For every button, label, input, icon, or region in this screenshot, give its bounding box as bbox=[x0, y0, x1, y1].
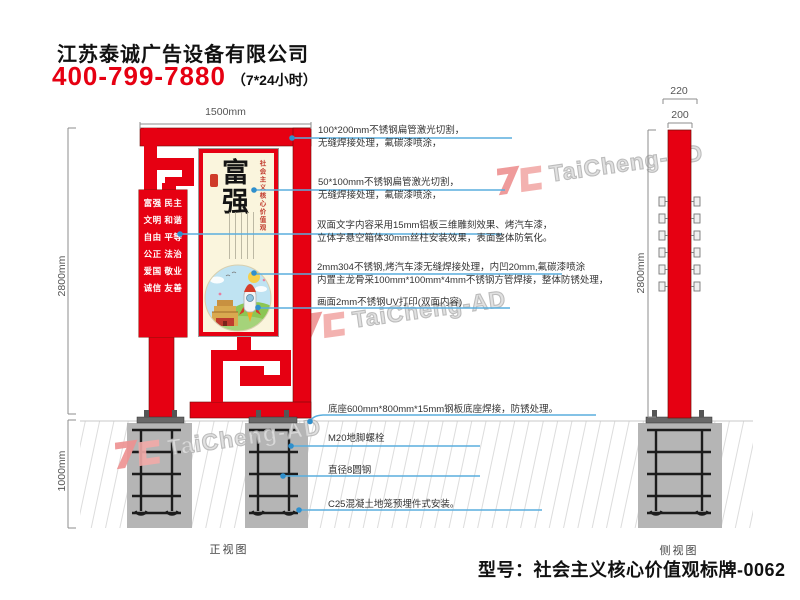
annotation-base-plate: 底座600mm*800mm*15mm钢板底座焊接，防锈处理。 bbox=[328, 403, 558, 416]
annotation-uv-print: 画面2mm不锈钢UV打印(双面内容) bbox=[317, 296, 462, 309]
phone-number: 400-799-7880 bbox=[52, 61, 226, 92]
dim-underground-label: 1000mm bbox=[56, 439, 68, 503]
phone-row: 400-799-7880 （7*24小时） bbox=[52, 61, 317, 92]
annotation-rebar: 直径8圆钢 bbox=[328, 464, 371, 477]
annotation-concrete: C25混凝土地笼预埋件式安装。 bbox=[328, 498, 459, 511]
service-hours: （7*24小时） bbox=[232, 70, 317, 90]
annotation-side-tube: 50*100mm不锈钢扁管激光切割， 无缝焊接处理，氟碳漆喷涂， bbox=[318, 176, 459, 202]
annotation-anchor-bolt: M20地脚螺栓 bbox=[328, 432, 384, 445]
annotation-top-tube: 100*200mm不锈钢扁管激光切割， 无缝焊接处理，氟碳漆喷涂， bbox=[318, 124, 464, 150]
annotation-cabinet: 2mm304不锈钢,烤汽车漆无缝焊接处理，内凹20mm,氟碳漆喷涂 内置主龙骨采… bbox=[317, 261, 608, 287]
dim-width-label: 1500mm bbox=[140, 106, 311, 118]
model-number: 型号：社会主义核心价值观标牌-0062 bbox=[478, 556, 786, 582]
dim-height-label-side: 2800mm bbox=[635, 241, 647, 305]
annotation-letters: 双面文字内容采用15mm铝板三维雕刻效果、烤汽车漆， 立体字悬空箱体30mm丝柱… bbox=[317, 219, 552, 245]
dim-outer-label: 220 bbox=[660, 85, 698, 97]
spec-sheet: TaiCheng-AD TaiCheng-AD TaiCheng-AD bbox=[0, 0, 800, 600]
dim-height-label-front: 2800mm bbox=[56, 244, 68, 308]
front-view-label: 正视图 bbox=[194, 541, 264, 557]
dim-inner-label: 200 bbox=[665, 109, 695, 121]
